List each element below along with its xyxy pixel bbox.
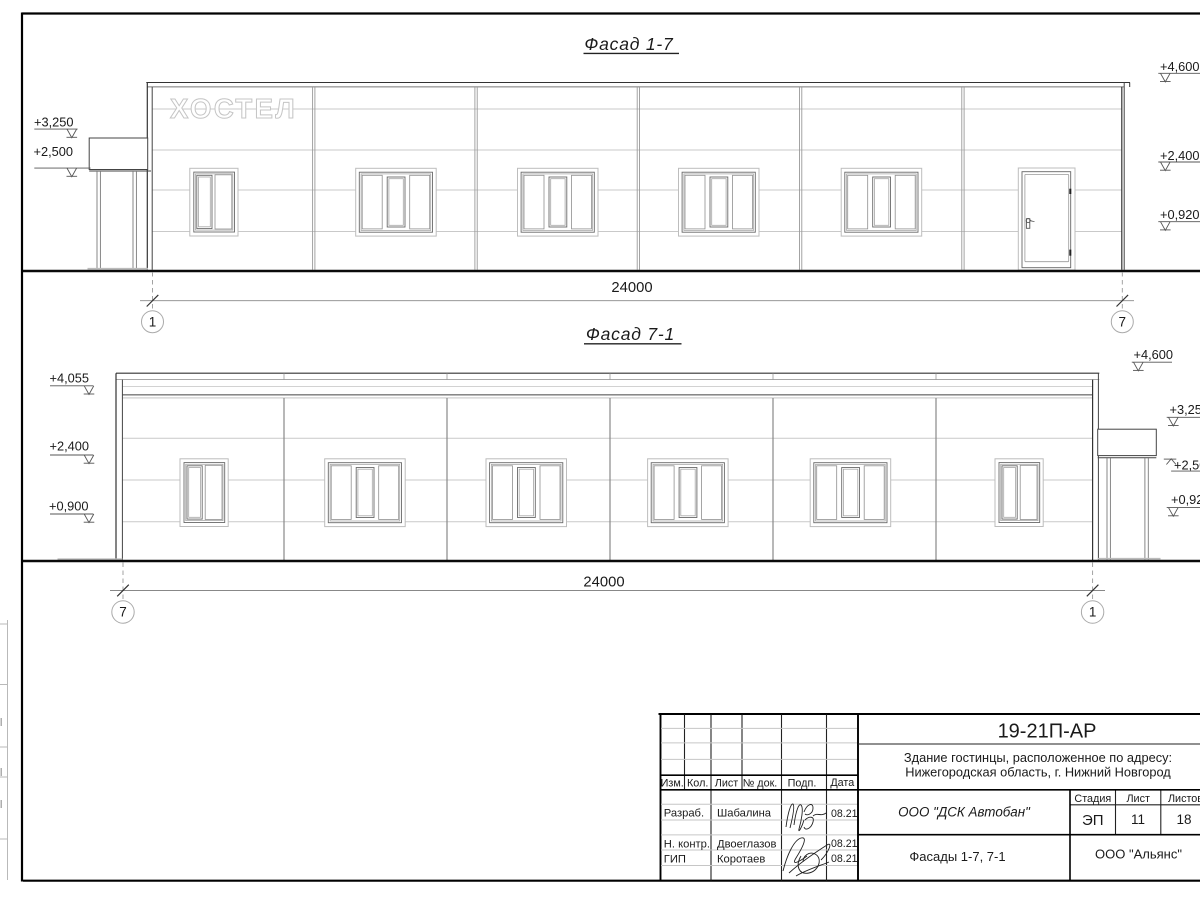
- svg-text:Стадия: Стадия: [1074, 793, 1111, 805]
- svg-text:+4,055: +4,055: [50, 370, 90, 385]
- svg-text:Коротаев: Коротаев: [717, 853, 765, 865]
- svg-text:+2,500: +2,500: [34, 144, 74, 159]
- svg-text:ХОСТЕЛ: ХОСТЕЛ: [170, 93, 297, 124]
- svg-text:Дата: Дата: [830, 777, 854, 789]
- svg-text:Лист: Лист: [715, 777, 739, 789]
- svg-text:Разраб.: Разраб.: [664, 808, 704, 820]
- svg-text:+0,920: +0,920: [1171, 492, 1200, 507]
- svg-text:08.21: 08.21: [831, 853, 858, 865]
- svg-text:1: 1: [1089, 605, 1097, 620]
- svg-text:ЭП: ЭП: [1082, 812, 1104, 829]
- svg-text:24000: 24000: [611, 280, 652, 296]
- svg-text:+0,920: +0,920: [1160, 207, 1200, 222]
- svg-text:18: 18: [1176, 812, 1191, 827]
- svg-text:Подп.: Подп.: [788, 777, 817, 789]
- svg-text:Нижегородская область, г. Нижн: Нижегородская область, г. Нижний Новгоро…: [905, 765, 1171, 780]
- svg-text:Лист: Лист: [1126, 793, 1150, 805]
- svg-text:+2,400: +2,400: [1160, 148, 1200, 163]
- svg-text:+3,250: +3,250: [34, 114, 74, 129]
- svg-text:7: 7: [119, 605, 127, 620]
- svg-text:08.21: 08.21: [831, 838, 858, 850]
- svg-text:Фасад 7-1: Фасад 7-1: [586, 324, 675, 344]
- svg-text:№ док.: № док.: [743, 777, 778, 789]
- svg-text:Листов: Листов: [1168, 793, 1200, 805]
- svg-text:Двоеглазов: Двоеглазов: [717, 838, 777, 850]
- svg-text:11: 11: [1131, 812, 1145, 827]
- svg-text:24000: 24000: [583, 575, 624, 591]
- svg-text:Фасады 1-7, 7-1: Фасады 1-7, 7-1: [909, 849, 1005, 864]
- svg-text:Изм.: Изм.: [661, 777, 684, 789]
- svg-text:ООО "Альянс": ООО "Альянс": [1095, 847, 1182, 862]
- svg-text:1: 1: [149, 314, 157, 329]
- svg-text:Здание гостинцы, расположенное: Здание гостинцы, расположенное по адресу…: [904, 750, 1172, 765]
- svg-text:7: 7: [1119, 314, 1127, 329]
- svg-text:19-21П-АР: 19-21П-АР: [998, 720, 1097, 742]
- svg-text:ГИП: ГИП: [664, 853, 686, 865]
- svg-text:+2,500: +2,500: [1174, 457, 1200, 472]
- svg-text:+0,900: +0,900: [49, 499, 89, 514]
- svg-text:Фасад 1-7: Фасад 1-7: [584, 34, 674, 54]
- svg-text:+2,400: +2,400: [50, 439, 90, 454]
- svg-text:ООО "ДСК Автобан": ООО "ДСК Автобан": [898, 805, 1031, 820]
- svg-text:Н. контр.: Н. контр.: [664, 838, 710, 850]
- svg-text:08.21: 08.21: [831, 808, 858, 820]
- svg-text:+3,250: +3,250: [1170, 402, 1200, 417]
- svg-text:+4,600: +4,600: [1160, 59, 1200, 74]
- svg-text:+4,600: +4,600: [1134, 347, 1174, 362]
- svg-text:Шабалина: Шабалина: [717, 808, 772, 820]
- svg-text:Кол.: Кол.: [687, 777, 708, 789]
